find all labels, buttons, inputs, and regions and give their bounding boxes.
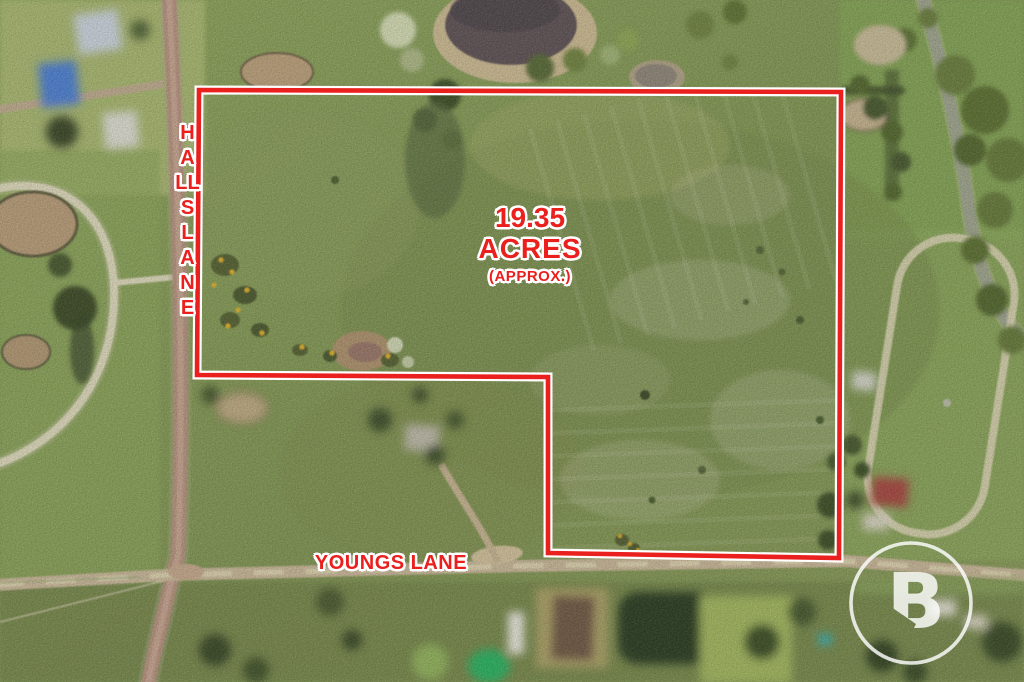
aerial-scene: B	[0, 0, 1024, 682]
road-label-halls-lane: HALLS LANE	[175, 121, 200, 321]
area-unit: ACRES	[440, 233, 620, 264]
listing-aerial-photo: B HALLS LANE 19.35 ACRES (APPROX.) YOUNG…	[0, 0, 1024, 682]
area-value: 19.35	[440, 202, 620, 233]
road-label-youngs-lane: YOUNGS LANE	[306, 552, 476, 575]
area-annotation: 19.35 ACRES (APPROX.)	[440, 202, 620, 287]
grain-light	[0, 0, 1024, 682]
brand-logo-b-icon: B	[887, 558, 946, 647]
area-qualifier: (APPROX.)	[440, 267, 620, 287]
